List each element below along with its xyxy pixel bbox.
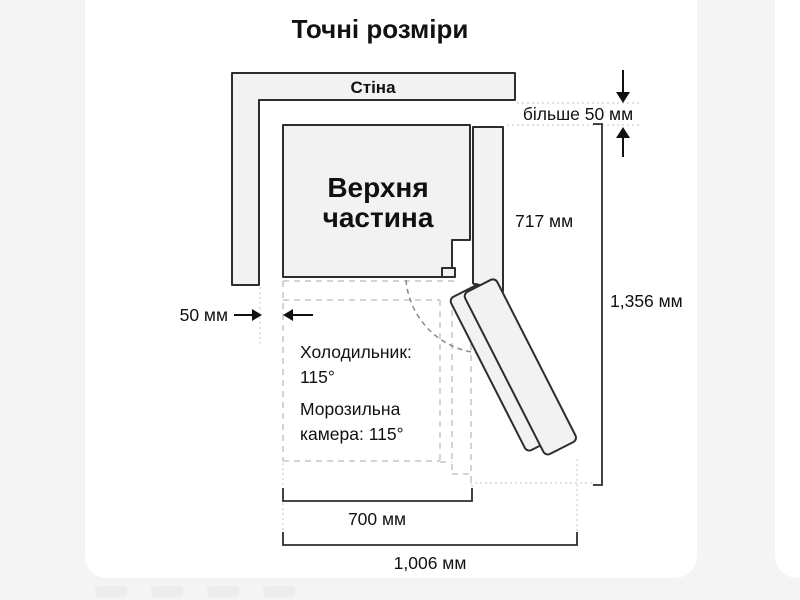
- width-inner-bracket: [283, 488, 472, 501]
- top-clearance-label: більше 50 мм: [523, 104, 633, 124]
- fridge-angle-label-line2: 115°: [300, 367, 335, 387]
- total-depth-label: 1,356 мм: [610, 291, 683, 311]
- arrow-up-icon: [616, 127, 630, 138]
- width-inner-label: 700 мм: [348, 509, 406, 529]
- side-clearance-label: 50 мм: [180, 305, 228, 325]
- width-total-label: 1,006 мм: [394, 553, 467, 573]
- freezer-angle-label-line1: Морозильна: [300, 399, 401, 419]
- upper-section-label-line2: частина: [323, 202, 434, 233]
- total-depth-dimension-line: [593, 124, 602, 485]
- door-closed-panel: [473, 127, 503, 297]
- upper-section-label-line1: Верхня: [327, 172, 428, 203]
- fridge-angle-label-line1: Холодильник:: [300, 342, 412, 362]
- hinge-mount: [442, 268, 455, 277]
- dimensions-diagram: Точні розміри Стіна більше 50 мм 1,356 м…: [0, 0, 800, 600]
- freezer-angle-label-line2: камера: 115°: [300, 424, 404, 444]
- diagram-title: Точні розміри: [292, 14, 469, 44]
- arrow-left-icon: [283, 309, 293, 321]
- upper-depth-label: 717 мм: [515, 211, 573, 231]
- wall-label: Стіна: [350, 78, 396, 97]
- product-image-stage: Точні розміри Стіна більше 50 мм 1,356 м…: [0, 0, 800, 600]
- width-total-bracket: [283, 532, 577, 545]
- arrow-down-icon: [616, 92, 630, 103]
- arrow-right-icon: [252, 309, 262, 321]
